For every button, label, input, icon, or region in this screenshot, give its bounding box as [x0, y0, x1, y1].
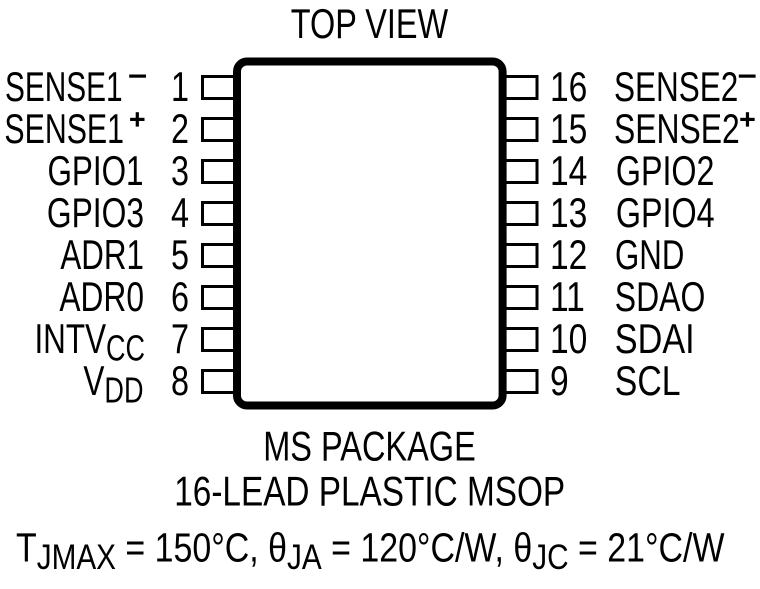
svg-text:TJMAX = 150°C, θJA = 120°C/W,: TJMAX = 150°C, θJA = 120°C/W, θJC = 21°C…	[16, 525, 725, 577]
svg-text:6: 6	[171, 273, 189, 320]
svg-text:1: 1	[171, 63, 189, 110]
svg-text:ADR0: ADR0	[59, 272, 144, 319]
svg-text:GPIO3: GPIO3	[47, 188, 144, 235]
svg-text:5: 5	[171, 231, 189, 278]
svg-text:13: 13	[550, 190, 587, 236]
svg-text:GND: GND	[615, 231, 684, 278]
svg-text:GPIO1: GPIO1	[47, 146, 143, 194]
svg-text:15: 15	[550, 106, 587, 152]
svg-text:SENSE2: SENSE2	[614, 62, 738, 110]
svg-text:ADR1: ADR1	[60, 230, 144, 278]
svg-text:14: 14	[550, 148, 587, 194]
svg-text:16: 16	[550, 64, 587, 110]
svg-text:SCL: SCL	[615, 357, 681, 404]
svg-text:3: 3	[171, 147, 189, 194]
svg-text:11: 11	[550, 274, 585, 320]
svg-text:SDAI: SDAI	[615, 316, 695, 363]
svg-text:SENSE1: SENSE1	[5, 63, 123, 110]
svg-text:SENSE1: SENSE1	[4, 105, 124, 152]
svg-text:8: 8	[171, 357, 189, 404]
svg-text:SDAO: SDAO	[615, 273, 705, 320]
svg-text:TOP VIEW: TOP VIEW	[291, 0, 449, 47]
svg-text:MS PACKAGE: MS PACKAGE	[263, 422, 476, 469]
svg-text:10: 10	[550, 316, 587, 362]
svg-text:7: 7	[171, 315, 189, 362]
svg-text:16-LEAD PLASTIC MSOP: 16-LEAD PLASTIC MSOP	[174, 468, 565, 514]
svg-text:12: 12	[550, 232, 587, 278]
svg-text:SENSE2: SENSE2	[614, 104, 740, 151]
svg-text:9: 9	[550, 358, 569, 404]
svg-text:GPIO2: GPIO2	[616, 147, 715, 194]
svg-text:GPIO4: GPIO4	[616, 189, 715, 236]
svg-text:2: 2	[171, 105, 189, 152]
svg-text:4: 4	[171, 189, 189, 236]
